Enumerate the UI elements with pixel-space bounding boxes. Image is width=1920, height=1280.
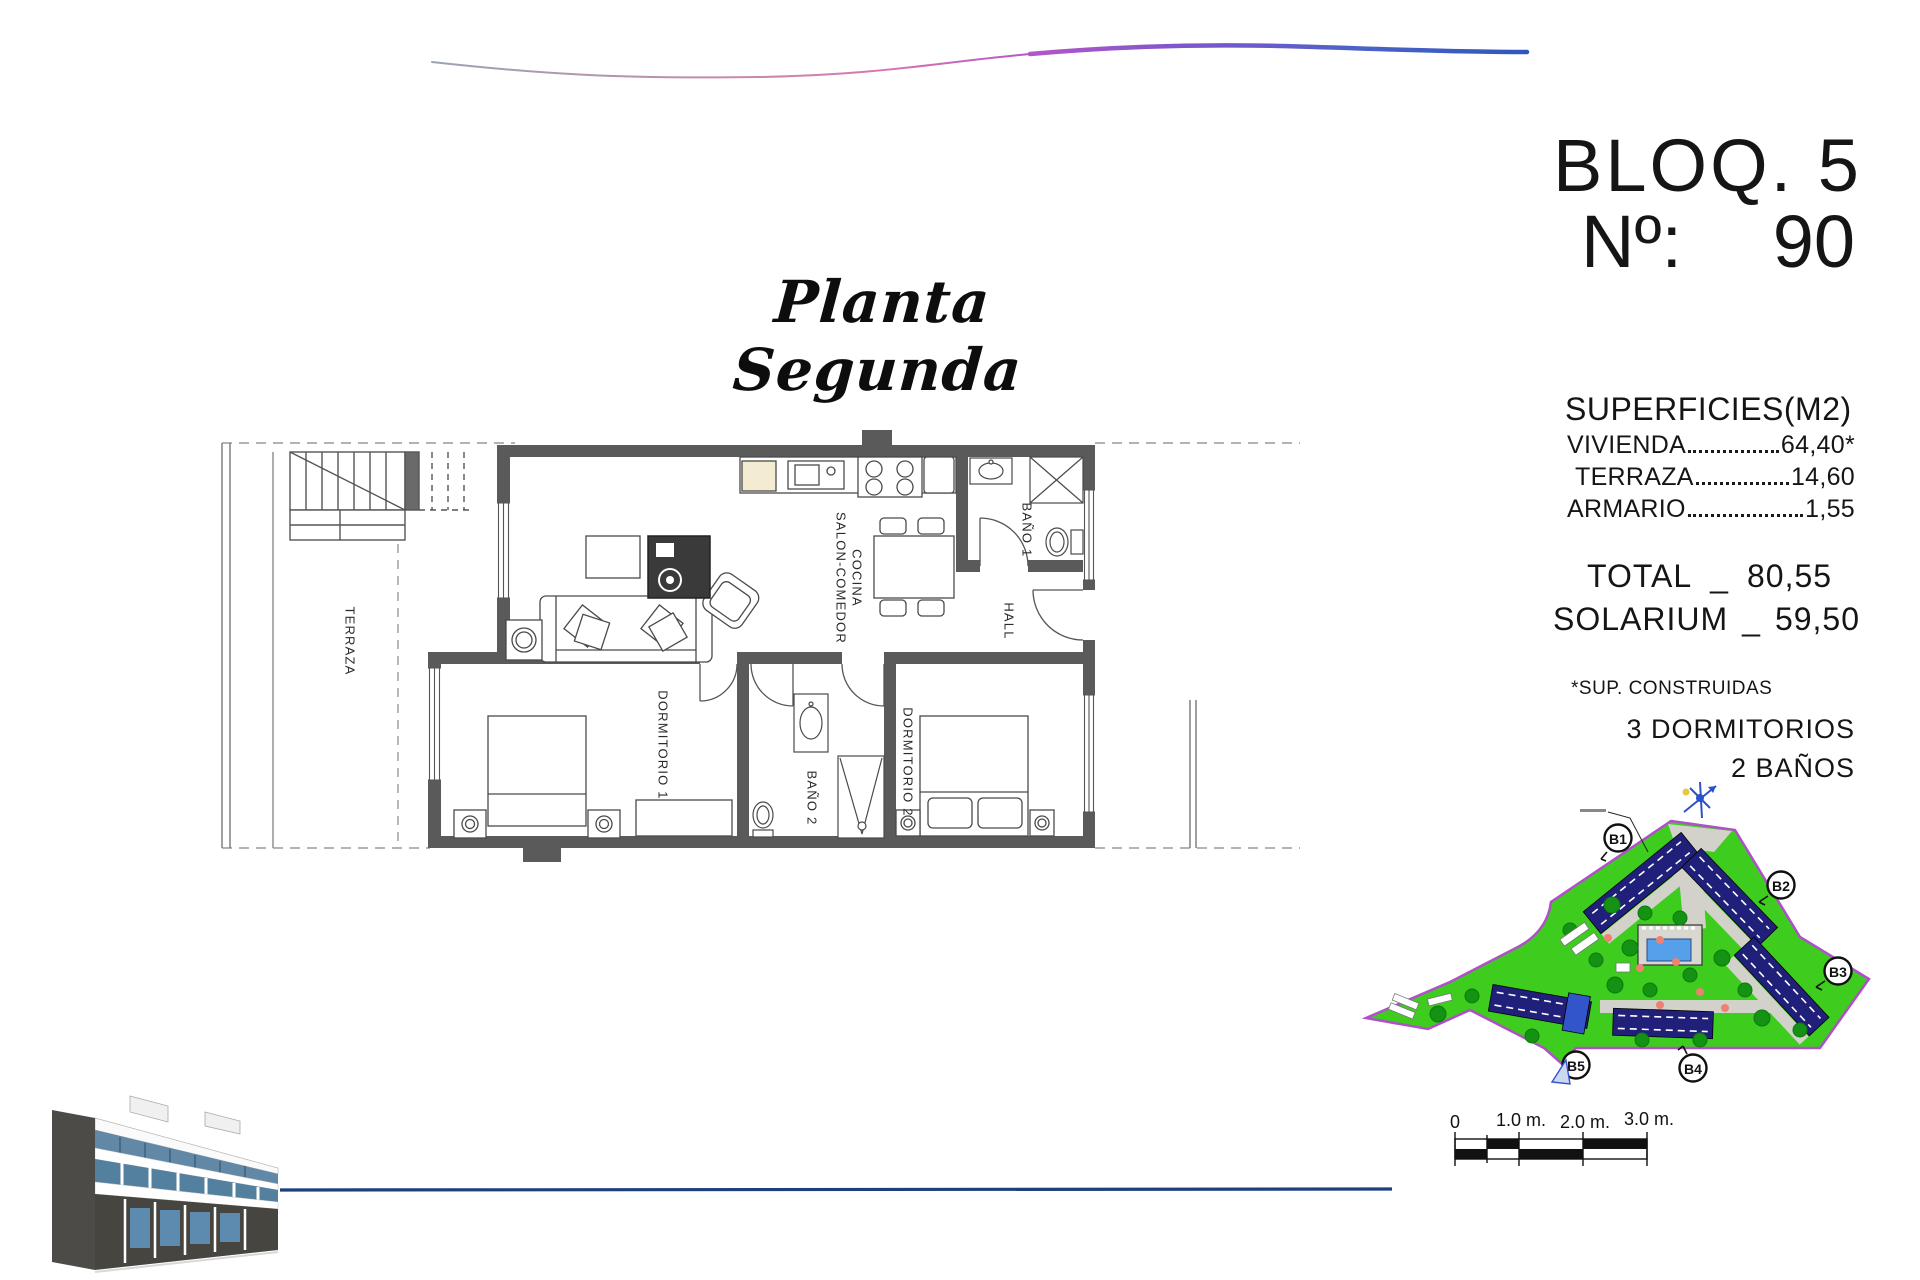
surface-value: 64,40* [1781, 431, 1855, 460]
badge-b5-label: B5 [1567, 1058, 1585, 1074]
header-wave-line [432, 45, 1527, 77]
label-bano2: BAÑO 2 [805, 771, 820, 826]
dotted-leader [1688, 514, 1803, 517]
bathrooms-count: 2 BAÑOS [1553, 753, 1855, 784]
badge-b4-label: B4 [1684, 1061, 1702, 1077]
bedrooms-count: 3 DORMITORIOS [1553, 714, 1855, 745]
unit-number-label: Nº: [1581, 205, 1682, 279]
dotted-leader [1688, 450, 1779, 453]
label-dorm1: DORMITORIO 1 [656, 690, 671, 800]
label-terraza: TERRAZA [343, 606, 358, 675]
surface-label: VIVIENDA [1567, 431, 1686, 460]
scale-bar: 0 1.0 m. 2.0 m. 3.0 m. [1450, 1109, 1674, 1166]
solarium-label: SOLARIUM [1553, 601, 1728, 638]
block-label: BLOQ. 5 [1553, 128, 1855, 203]
solarium-separator: _ [1742, 601, 1761, 638]
building-render [52, 1096, 278, 1272]
unit-number-row: Nº: 90 [1553, 205, 1855, 279]
pool [1638, 925, 1702, 965]
surface-row-terraza: TERRAZA 14,60 [1575, 463, 1855, 492]
badge-b2-label: B2 [1772, 878, 1790, 894]
plan-sheet: TERRAZA SALON-COMEDOR COCINA BAÑO 1 HALL… [0, 0, 1920, 1280]
total-label: TOTAL [1587, 558, 1692, 595]
surface-value: 1,55 [1805, 495, 1855, 524]
kitchen-counter [740, 457, 956, 497]
unit-info-panel: BLOQ. 5 Nº: 90 SUPERFICIES(M2) VIVIENDA … [1553, 128, 1855, 784]
surface-label: TERRAZA [1575, 463, 1694, 492]
scale-3m: 3.0 m. [1624, 1109, 1674, 1129]
unit-number-value: 90 [1773, 205, 1855, 279]
surface-label: ARMARIO [1567, 495, 1686, 524]
solarium-row: SOLARIUM _ 59,50 [1553, 601, 1855, 638]
floor-plan: TERRAZA SALON-COMEDOR COCINA BAÑO 1 HALL… [222, 430, 1300, 862]
badge-b1-label: B1 [1609, 831, 1627, 847]
scale-1m: 1.0 m. [1496, 1110, 1546, 1130]
surface-row-vivienda: VIVIENDA 64,40* [1567, 431, 1855, 460]
dining-table [874, 518, 954, 616]
sofa [540, 596, 712, 662]
dotted-leader [1696, 482, 1789, 485]
label-bano1: BAÑO 1 [1020, 503, 1035, 558]
label-salon-line2: COCINA [850, 549, 865, 607]
surfaces-heading: SUPERFICIES(M2) [1565, 391, 1855, 428]
compass-icon [1683, 782, 1717, 818]
site-plan: B1 B2 B3 B4 B5 [1366, 782, 1869, 1084]
site-callout-text [1580, 809, 1606, 812]
label-salon-line1: SALON-COMEDOR [834, 512, 849, 644]
total-separator: _ [1710, 558, 1729, 595]
built-in-wardrobe [648, 536, 710, 598]
label-dorm2: DORMITORIO 2 [901, 707, 916, 817]
terrace-stairs [290, 452, 470, 540]
bedroom2-furniture [896, 716, 1054, 836]
total-row: TOTAL _ 80,55 [1553, 558, 1855, 595]
surface-value: 14,60 [1791, 463, 1855, 492]
surfaces-footnote: *SUP. CONSTRUIDAS [1571, 678, 1855, 700]
solarium-value: 59,50 [1775, 601, 1860, 638]
bottom-divider-line [280, 1189, 1392, 1190]
badge-b4: B4 [1678, 1046, 1707, 1082]
page-title: Planta Segunda [635, 268, 1125, 404]
label-hall: HALL [1002, 602, 1017, 639]
total-value: 80,55 [1747, 558, 1832, 595]
coffee-table [586, 536, 640, 578]
scale-2m: 2.0 m. [1560, 1112, 1610, 1132]
scale-0: 0 [1450, 1112, 1460, 1132]
badge-b3-label: B3 [1829, 964, 1847, 980]
surface-row-armario: ARMARIO 1,55 [1567, 495, 1855, 524]
bedroom1-furniture [454, 716, 732, 838]
side-table [506, 620, 542, 660]
